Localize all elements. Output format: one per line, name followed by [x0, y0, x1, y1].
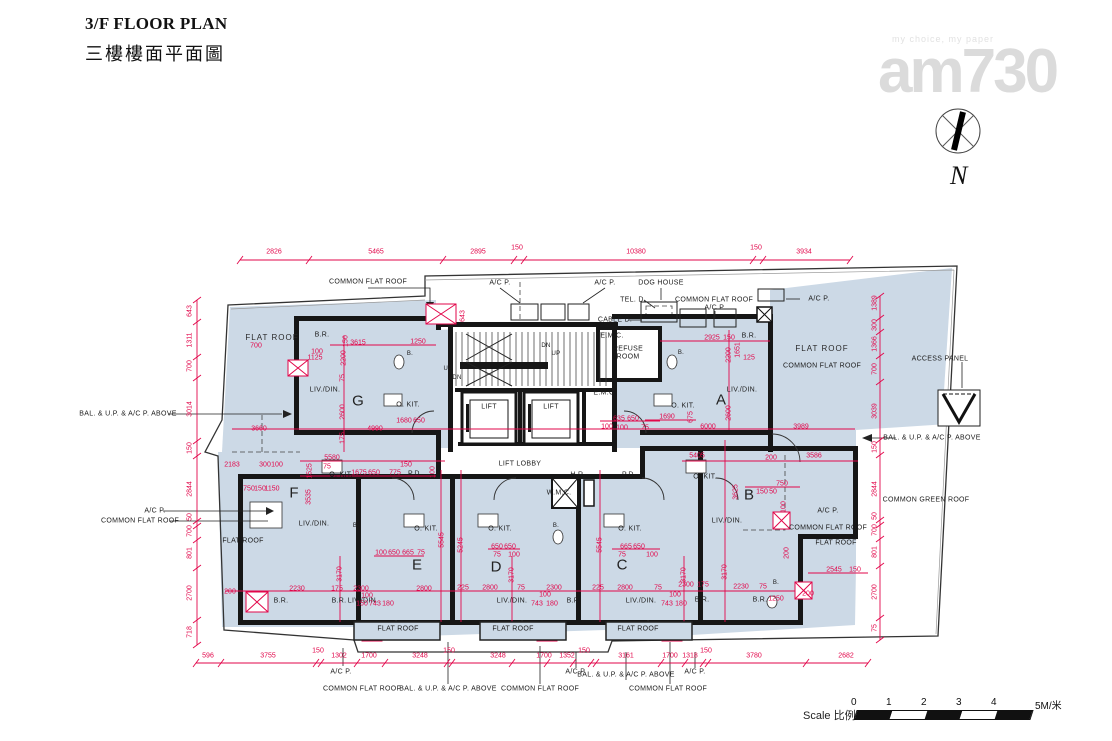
scale-segment — [890, 711, 928, 719]
scale-tick: 2 — [921, 697, 927, 708]
scale-segment — [995, 711, 1033, 719]
scale-segment — [960, 711, 998, 719]
scale-unit: 5M/米 — [1035, 697, 1062, 712]
scale-bar: Scale 比例: 01234 5M/米 — [803, 700, 1103, 734]
scale-segment — [925, 711, 963, 719]
scale-segment — [855, 711, 893, 719]
scale-tick: 4 — [991, 697, 997, 708]
scale-tick: 1 — [886, 697, 892, 708]
plan-geometry — [0, 0, 1112, 741]
scale-tick: 0 — [851, 697, 857, 708]
floor-plan-page: 3/F FLOOR PLAN 三樓樓面平面圖 my choice, my pap… — [0, 0, 1112, 741]
scale-tick: 3 — [956, 697, 962, 708]
floor-plan-drawing: FLAT ROOFFLAT ROOFFLAT ROOFFLAT ROOFFLAT… — [0, 0, 1112, 741]
scale-label: Scale 比例: — [803, 707, 859, 723]
scale-strip — [853, 710, 1033, 720]
